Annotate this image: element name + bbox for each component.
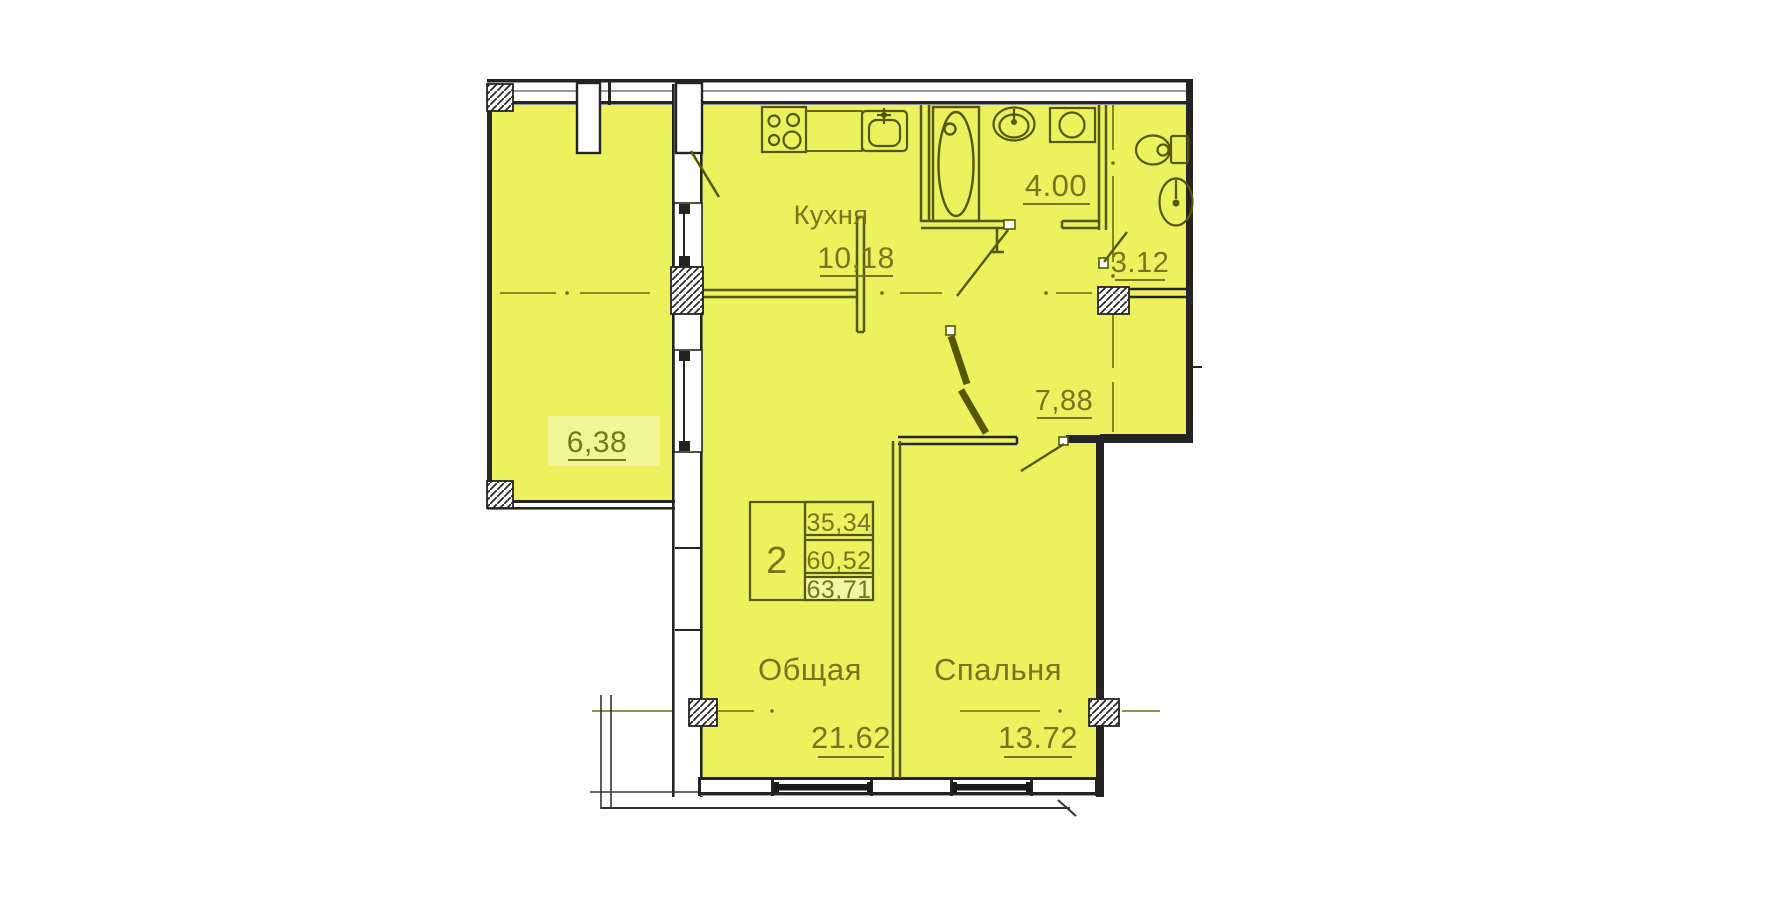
- floor-plan: 2 35,34 60,52 63,71 Кухня 10,18 4.00 3.1…: [0, 0, 1778, 914]
- loggia-area-value: 6,38: [567, 426, 627, 459]
- table-row-2: 60,52: [806, 547, 871, 575]
- hatch-mark: [689, 699, 717, 726]
- rooms-count: 2: [766, 540, 788, 582]
- table-row-1: 35,34: [806, 509, 871, 537]
- kitchen-area-value: 10,18: [817, 242, 895, 275]
- wc-area-value: 3.12: [1111, 247, 1169, 279]
- table-row-3: 63,71: [806, 576, 871, 604]
- hatch-mark: [487, 481, 513, 508]
- living-label: Общая: [758, 652, 862, 687]
- bathroom-area-value: 4.00: [1025, 168, 1087, 203]
- kitchen-label: Кухня: [794, 200, 869, 230]
- bedroom-label: Спальня: [934, 652, 1062, 687]
- floor-plan-page: 2 35,34 60,52 63,71 Кухня 10,18 4.00 3.1…: [0, 0, 1778, 914]
- door-frame: [1004, 220, 1015, 229]
- hall-area-value: 7,88: [1035, 385, 1093, 417]
- window-icon: [674, 203, 702, 267]
- living-area-value: 21.62: [811, 720, 891, 755]
- hatch-mark: [1089, 699, 1119, 726]
- bedroom-area-value: 13.72: [998, 720, 1078, 755]
- hatch-mark: [1098, 287, 1129, 314]
- window-icon: [674, 350, 702, 452]
- hatch-mark: [487, 84, 513, 111]
- hatch-mark: [671, 267, 703, 314]
